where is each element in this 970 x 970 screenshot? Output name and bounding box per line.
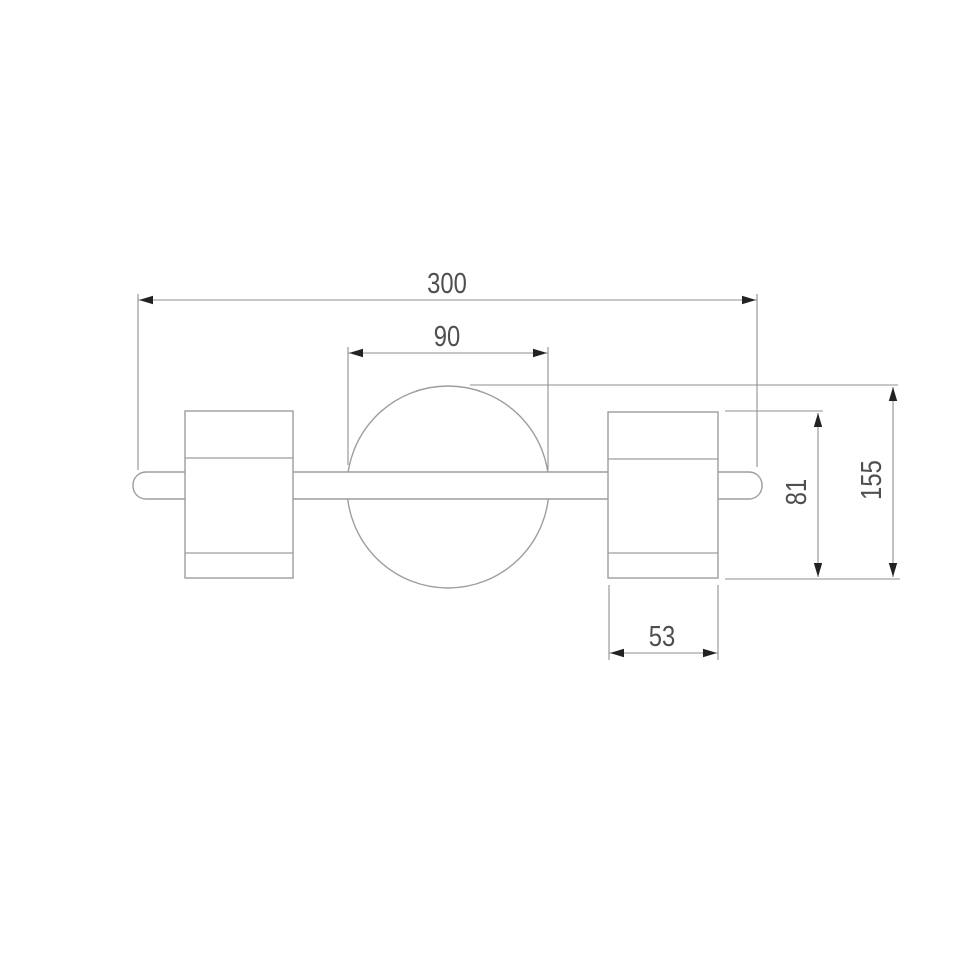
dim-label-overall-height: 155: [855, 460, 888, 500]
dim-spot-width: 53: [609, 585, 718, 660]
dim-label-overall-width: 300: [427, 267, 467, 300]
dim-label-spot-width: 53: [649, 620, 675, 653]
arrow-down-icon: [889, 563, 897, 577]
arrow-down-icon: [814, 563, 822, 577]
arrow-left-icon: [610, 649, 624, 657]
arrow-right-icon: [703, 649, 717, 657]
dim-label-sphere-diameter: 90: [434, 320, 460, 353]
technical-drawing-canvas: 300 90 81 155: [0, 0, 970, 970]
wall-lamp-dimension-drawing: 300 90 81 155: [0, 0, 970, 970]
arrow-right-icon: [742, 296, 756, 304]
dim-label-spot-height: 81: [780, 479, 813, 505]
arrow-up-icon: [814, 413, 822, 427]
arrow-up-icon: [889, 387, 897, 401]
right-spot-cylinder: [608, 412, 718, 578]
arrow-left-icon: [349, 349, 363, 357]
left-spot-cylinder: [185, 411, 293, 578]
arrow-right-icon: [533, 349, 547, 357]
arrow-left-icon: [139, 296, 153, 304]
fixture-outline: [133, 386, 762, 588]
